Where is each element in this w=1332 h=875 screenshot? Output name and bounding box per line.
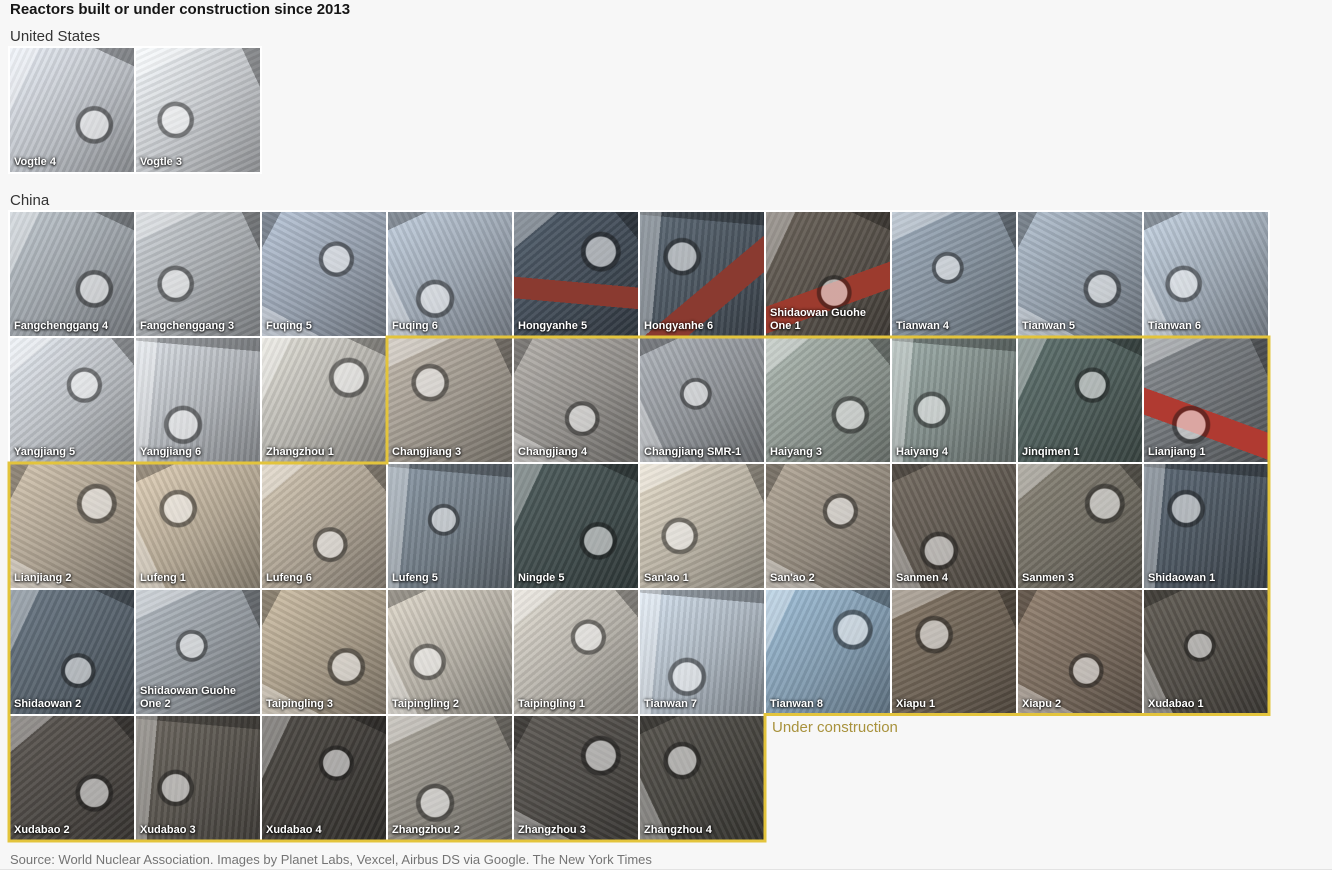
reactor-tile-label: Tianwan 4	[896, 320, 949, 333]
reactor-tile: Xiapu 2	[1018, 590, 1142, 714]
reactor-tile-label: Fuqing 6	[392, 320, 438, 333]
reactor-tile: Fuqing 6	[388, 212, 512, 336]
reactor-tile: Changjiang SMR-1	[640, 338, 764, 462]
reactor-tile: Vogtle 3	[136, 48, 260, 172]
reactor-tile: Changjiang 3	[388, 338, 512, 462]
reactor-tile: Vogtle 4	[10, 48, 134, 172]
reactor-tile-label: Shidaowan Guohe One 2	[140, 685, 254, 711]
reactor-tile: Shidaowan 2	[10, 590, 134, 714]
reactor-tile: San'ao 2	[766, 464, 890, 588]
reactor-tile: Sanmen 4	[892, 464, 1016, 588]
reactor-tile-label: Taipingling 2	[392, 698, 459, 711]
reactor-tile-label: Lufeng 6	[266, 572, 312, 585]
reactor-tile: Lufeng 6	[262, 464, 386, 588]
us-reactor-grid: Vogtle 4Vogtle 3	[10, 48, 260, 172]
section-header-china: China	[10, 192, 49, 209]
reactor-tile-label: Sanmen 3	[1022, 572, 1074, 585]
bottom-divider	[0, 869, 1332, 875]
reactor-tile-label: Yangjiang 6	[140, 446, 201, 459]
reactor-tile: Taipingling 3	[262, 590, 386, 714]
reactor-tile-label: Hongyanhe 5	[518, 320, 587, 333]
reactor-tile: Taipingling 2	[388, 590, 512, 714]
reactor-tile: Fangchenggang 4	[10, 212, 134, 336]
reactor-tile-label: Shidaowan 2	[14, 698, 81, 711]
reactor-tile-label: Taipingling 3	[266, 698, 333, 711]
reactor-tile-label: Yangjiang 5	[14, 446, 75, 459]
reactor-tile: Jinqimen 1	[1018, 338, 1142, 462]
reactor-tile-label: Fangchenggang 4	[14, 320, 108, 333]
reactor-tile: Sanmen 3	[1018, 464, 1142, 588]
reactor-tile-label: Ningde 5	[518, 572, 564, 585]
reactor-tile-label: Haiyang 3	[770, 446, 822, 459]
reactor-tile-label: Taipingling 1	[518, 698, 585, 711]
reactor-tile-label: Hongyanhe 6	[644, 320, 713, 333]
reactor-tile-label: Tianwan 8	[770, 698, 823, 711]
reactor-tile: Hongyanhe 5	[514, 212, 638, 336]
reactor-tile: Ningde 5	[514, 464, 638, 588]
reactors-graphic: Reactors built or under construction sin…	[0, 0, 1332, 875]
reactor-tile: Tianwan 5	[1018, 212, 1142, 336]
reactor-tile-label: Zhangzhou 2	[392, 824, 460, 837]
reactor-tile: Lianjiang 1	[1144, 338, 1268, 462]
reactor-tile: Lianjiang 2	[10, 464, 134, 588]
reactor-tile-label: San'ao 1	[644, 572, 689, 585]
reactor-tile: Xudabao 1	[1144, 590, 1268, 714]
reactor-tile: Tianwan 8	[766, 590, 890, 714]
reactor-tile: Haiyang 4	[892, 338, 1016, 462]
reactor-tile: Haiyang 3	[766, 338, 890, 462]
reactor-tile-label: Vogtle 4	[14, 156, 56, 169]
reactor-tile: Xudabao 4	[262, 716, 386, 840]
reactor-tile: Zhangzhou 3	[514, 716, 638, 840]
reactor-tile-label: Changjiang 4	[518, 446, 587, 459]
reactor-tile-label: Xudabao 2	[14, 824, 70, 837]
reactor-tile: Yangjiang 5	[10, 338, 134, 462]
reactor-tile-label: Zhangzhou 4	[644, 824, 712, 837]
reactor-tile-label: Zhangzhou 3	[518, 824, 586, 837]
reactor-tile-label: Tianwan 6	[1148, 320, 1201, 333]
reactor-tile: Tianwan 7	[640, 590, 764, 714]
reactor-tile-label: Sanmen 4	[896, 572, 948, 585]
reactor-tile: Fangchenggang 3	[136, 212, 260, 336]
reactor-tile-label: Xudabao 1	[1148, 698, 1204, 711]
reactor-tile: Fuqing 5	[262, 212, 386, 336]
reactor-tile-label: Lianjiang 2	[14, 572, 71, 585]
reactor-tile-label: Fuqing 5	[266, 320, 312, 333]
reactor-tile-label: Haiyang 4	[896, 446, 948, 459]
reactor-tile: San'ao 1	[640, 464, 764, 588]
reactor-tile: Xiapu 1	[892, 590, 1016, 714]
reactor-tile-label: Zhangzhou 1	[266, 446, 334, 459]
reactor-tile-label: Tianwan 5	[1022, 320, 1075, 333]
reactor-tile-label: Xiapu 2	[1022, 698, 1061, 711]
reactor-tile-label: Shidaowan 1	[1148, 572, 1215, 585]
under-construction-label: Under construction	[772, 719, 898, 736]
reactor-tile: Hongyanhe 6	[640, 212, 764, 336]
reactor-tile-label: Changjiang 3	[392, 446, 461, 459]
reactor-tile: Zhangzhou 4	[640, 716, 764, 840]
reactor-tile-label: Lufeng 1	[140, 572, 186, 585]
reactor-tile: Tianwan 4	[892, 212, 1016, 336]
reactor-tile: Shidaowan 1	[1144, 464, 1268, 588]
reactor-tile: Lufeng 1	[136, 464, 260, 588]
reactor-tile: Zhangzhou 1	[262, 338, 386, 462]
reactor-tile-label: Jinqimen 1	[1022, 446, 1079, 459]
reactor-tile: Shidaowan Guohe One 1	[766, 212, 890, 336]
source-note: Source: World Nuclear Association. Image…	[10, 852, 652, 867]
reactor-tile: Yangjiang 6	[136, 338, 260, 462]
reactor-tile-label: Fangchenggang 3	[140, 320, 234, 333]
reactor-tile: Xudabao 3	[136, 716, 260, 840]
reactor-tile: Zhangzhou 2	[388, 716, 512, 840]
reactor-tile: Taipingling 1	[514, 590, 638, 714]
reactor-tile-label: Xudabao 4	[266, 824, 322, 837]
china-reactor-grid: Fangchenggang 4Fangchenggang 3Fuqing 5Fu…	[10, 212, 1268, 840]
reactor-tile-label: Vogtle 3	[140, 156, 182, 169]
reactor-tile-label: Lianjiang 1	[1148, 446, 1205, 459]
reactor-tile-label: Shidaowan Guohe One 1	[770, 307, 884, 333]
reactor-tile-label: Changjiang SMR-1	[644, 446, 741, 459]
reactor-tile-label: Xiapu 1	[896, 698, 935, 711]
reactor-tile: Xudabao 2	[10, 716, 134, 840]
section-header-united-states: United States	[10, 28, 100, 45]
reactor-tile: Tianwan 6	[1144, 212, 1268, 336]
reactor-tile: Lufeng 5	[388, 464, 512, 588]
page-title: Reactors built or under construction sin…	[10, 1, 350, 18]
reactor-tile-label: Xudabao 3	[140, 824, 196, 837]
reactor-tile: Changjiang 4	[514, 338, 638, 462]
reactor-tile: Shidaowan Guohe One 2	[136, 590, 260, 714]
reactor-tile-label: Tianwan 7	[644, 698, 697, 711]
reactor-tile-label: Lufeng 5	[392, 572, 438, 585]
reactor-tile-label: San'ao 2	[770, 572, 815, 585]
